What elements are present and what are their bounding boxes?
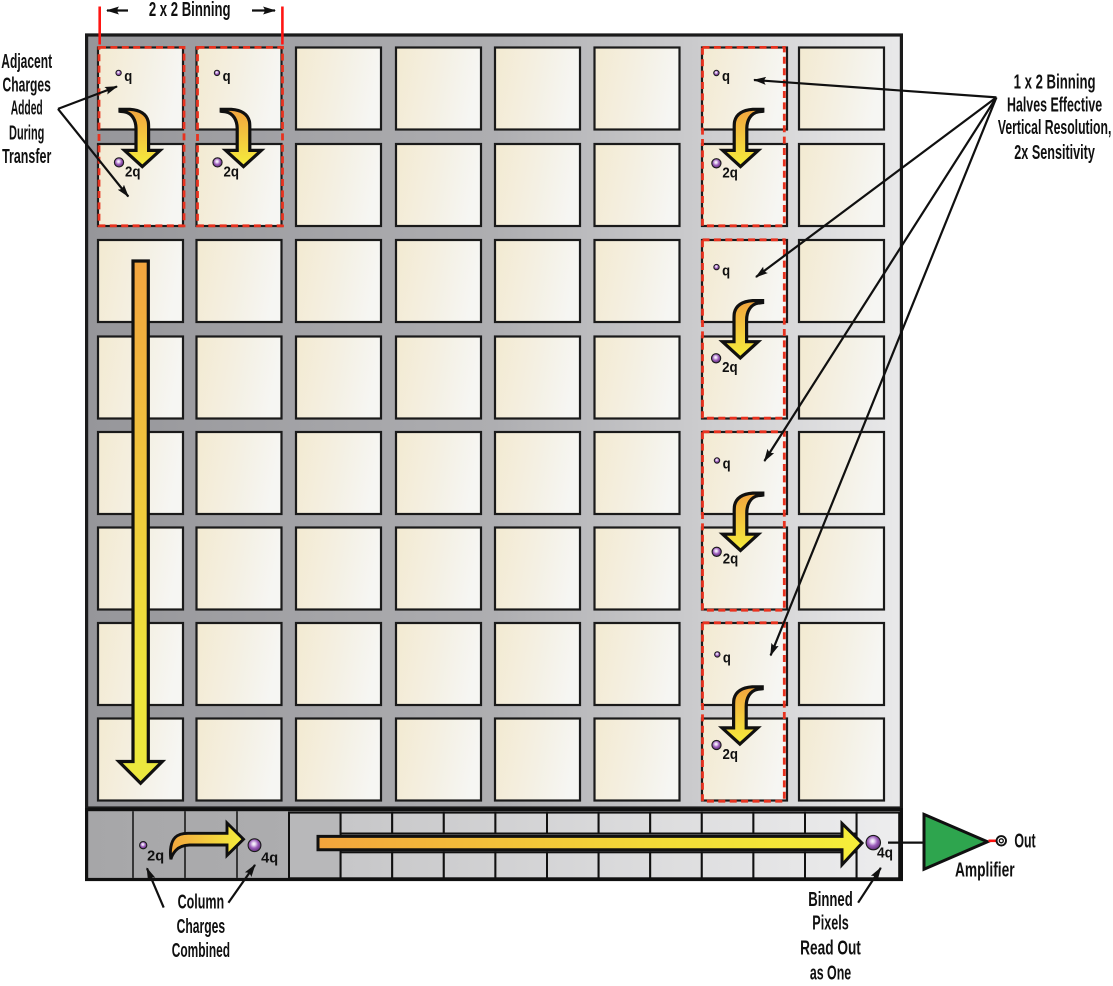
- svg-text:Added: Added: [11, 97, 43, 119]
- svg-text:Vertical Resolution,: Vertical Resolution,: [998, 117, 1112, 139]
- svg-text:q: q: [722, 69, 730, 85]
- svg-text:2q: 2q: [723, 552, 739, 568]
- svg-text:Amplifier: Amplifier: [955, 859, 1015, 881]
- svg-text:2q: 2q: [224, 164, 240, 180]
- svg-text:2x Sensitivity: 2x Sensitivity: [1014, 142, 1095, 164]
- svg-text:2q: 2q: [723, 747, 739, 763]
- svg-text:q: q: [223, 69, 231, 85]
- svg-text:2q: 2q: [147, 849, 164, 865]
- svg-text:Charges: Charges: [177, 916, 226, 938]
- svg-text:Pixels: Pixels: [812, 913, 848, 935]
- svg-text:q: q: [723, 651, 731, 667]
- svg-text:4q: 4q: [877, 846, 893, 862]
- svg-text:During: During: [9, 123, 44, 145]
- svg-text:Out: Out: [1014, 831, 1036, 853]
- svg-text:Charges: Charges: [3, 75, 51, 97]
- svg-text:4q: 4q: [261, 851, 278, 867]
- svg-text:2 x 2 Binning: 2 x 2 Binning: [149, 0, 231, 21]
- svg-text:1 x 2 Binning: 1 x 2 Binning: [1014, 72, 1096, 94]
- svg-text:as One: as One: [810, 963, 851, 981]
- svg-text:2q: 2q: [722, 166, 738, 182]
- svg-text:Read Out: Read Out: [800, 938, 861, 960]
- svg-text:Combined: Combined: [172, 940, 230, 962]
- svg-text:Transfer: Transfer: [2, 146, 51, 168]
- svg-text:q: q: [722, 263, 730, 279]
- svg-text:2q: 2q: [722, 360, 738, 376]
- svg-text:q: q: [723, 457, 731, 473]
- svg-text:Column: Column: [178, 892, 225, 914]
- svg-text:Halves Effective: Halves Effective: [1007, 94, 1102, 116]
- svg-text:2q: 2q: [125, 164, 141, 180]
- svg-text:q: q: [124, 69, 132, 85]
- svg-text:Adjacent: Adjacent: [1, 51, 52, 73]
- svg-text:Binned: Binned: [808, 889, 853, 911]
